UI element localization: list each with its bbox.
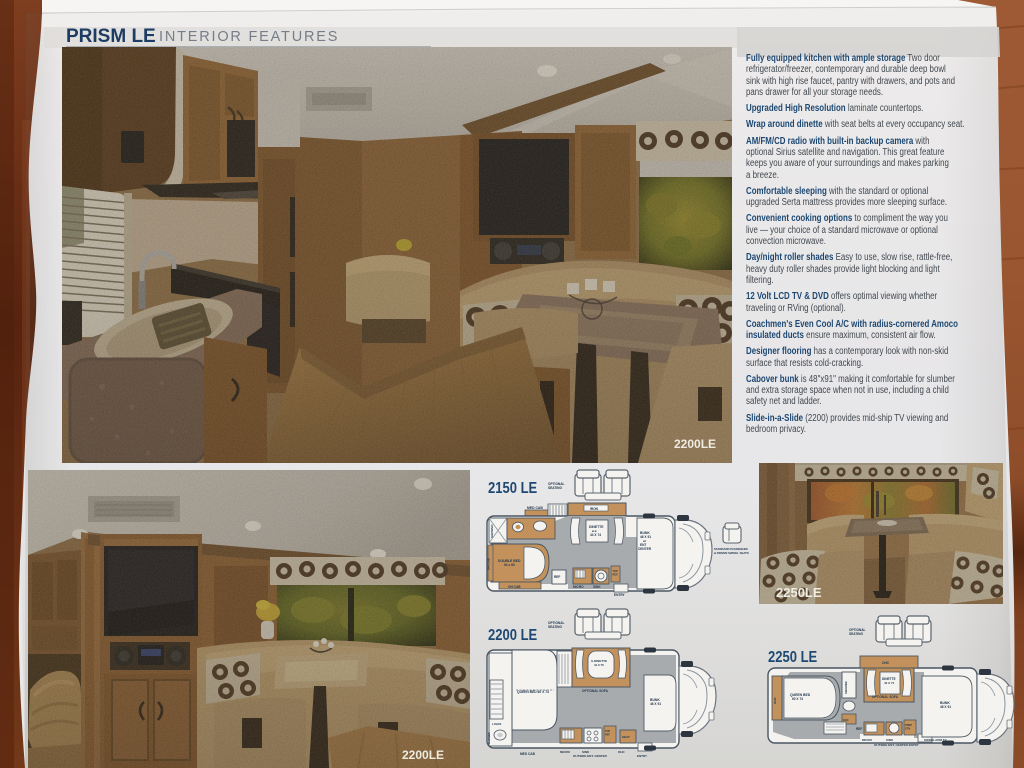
svg-text:MICRO: MICRO	[560, 750, 571, 754]
svg-text:SHOWER: SHOWER	[490, 524, 494, 538]
svg-text:SEAT: SEAT	[622, 735, 630, 739]
svg-text:SEATING: SEATING	[548, 486, 562, 490]
svg-text:OHC: OHC	[843, 718, 849, 722]
svg-text:OPTIONAL SOFA: OPTIONAL SOFA	[872, 695, 899, 699]
svg-text:CENTER: CENTER	[638, 547, 652, 551]
svg-text:54 x 80: 54 x 80	[504, 563, 515, 567]
svg-text:48 X 91: 48 X 91	[940, 705, 951, 709]
svg-text:SINK: SINK	[886, 738, 894, 742]
svg-text:OHC: OHC	[618, 750, 626, 754]
svg-text:OUTSIDE ENT. CENTER: OUTSIDE ENT. CENTER	[573, 754, 608, 758]
svg-text:SEATING: SEATING	[849, 632, 863, 636]
svg-text:MED CAB: MED CAB	[527, 506, 543, 510]
svg-text:OHC: OHC	[773, 697, 777, 705]
svg-text:2200LE: 2200LE	[402, 748, 444, 762]
svg-text:QUEEN BED 60 X 74: QUEEN BED 60 X 74	[517, 690, 549, 694]
svg-text:SINK: SINK	[593, 585, 601, 589]
svg-text:TOP: TOP	[613, 569, 619, 573]
svg-text:44 X 76: 44 X 76	[594, 663, 604, 667]
svg-text:OHC: OHC	[882, 661, 890, 665]
svg-text:PREP: PREP	[905, 723, 912, 727]
svg-text:REF: REF	[856, 727, 862, 731]
svg-text:& DRIVER SWIVEL SEATS: & DRIVER SWIVEL SEATS	[714, 551, 749, 555]
svg-text:ENTRY: ENTRY	[614, 593, 626, 597]
svg-text:44 X 74: 44 X 74	[590, 533, 601, 537]
svg-text:OH CAB: OH CAB	[487, 557, 491, 570]
svg-text:60 X 74: 60 X 74	[792, 697, 803, 701]
svg-text:2200LE: 2200LE	[674, 437, 716, 451]
svg-text:46 X 91: 46 X 91	[650, 702, 661, 706]
svg-text:OH CAB: OH CAB	[508, 585, 521, 589]
svg-text:REF: REF	[554, 575, 560, 579]
svg-text:SHOWER: SHOWER	[844, 681, 848, 694]
svg-text:OUTSIDE ENT. CENTER ENTRY: OUTSIDE ENT. CENTER ENTRY	[874, 743, 919, 747]
svg-text:LAVAN: LAVAN	[492, 722, 501, 726]
svg-text:MICRO: MICRO	[573, 585, 584, 589]
svg-text:REF.: REF.	[613, 573, 619, 577]
svg-text:STN: STN	[905, 727, 910, 731]
svg-text:SHOWER: SHOWER	[487, 732, 491, 744]
svg-text:SEATING: SEATING	[548, 625, 562, 629]
svg-text:2250LE: 2250LE	[776, 585, 822, 600]
svg-text:REF: REF	[605, 734, 610, 737]
svg-text:44 X 71: 44 X 71	[884, 681, 895, 685]
svg-text:MICRO: MICRO	[862, 738, 873, 742]
svg-text:OPTIONAL SOFA: OPTIONAL SOFA	[582, 689, 609, 693]
svg-text:IRON: IRON	[590, 507, 599, 511]
svg-text:MED CAB: MED CAB	[520, 752, 536, 756]
svg-text:ENTRY: ENTRY	[637, 754, 647, 758]
